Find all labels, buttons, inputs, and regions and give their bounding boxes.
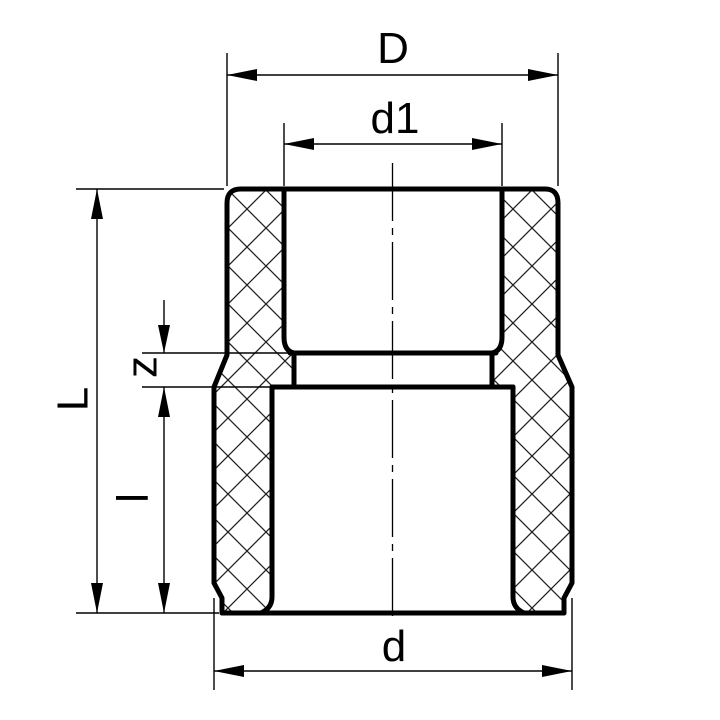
dimension-label-bore-diameter-top: d1 bbox=[371, 94, 420, 143]
drawing-canvas: D d1 L z bbox=[0, 0, 720, 720]
arrowhead-bottom bbox=[91, 583, 103, 613]
dimension-L: L bbox=[48, 189, 224, 613]
dimension-label-lower-height: l bbox=[108, 493, 157, 503]
arrowhead-right bbox=[542, 665, 572, 677]
arrowhead-down bbox=[158, 325, 170, 353]
dimension-label-overall-height: L bbox=[48, 387, 97, 411]
arrowhead-right bbox=[472, 138, 502, 150]
dimension-label-middle-step: z bbox=[117, 356, 166, 378]
dimension-label-outer-diameter-bottom: d bbox=[382, 622, 406, 671]
dimension-label-outer-diameter-top: D bbox=[377, 24, 409, 73]
fitting-section bbox=[214, 163, 572, 621]
arrowhead-left bbox=[214, 665, 244, 677]
arrowhead-left bbox=[284, 138, 314, 150]
technical-section-drawing: D d1 L z bbox=[0, 0, 720, 720]
arrowhead-top bbox=[158, 387, 170, 417]
arrowhead-top bbox=[91, 189, 103, 219]
arrowhead-left bbox=[227, 69, 257, 81]
arrowhead-right bbox=[528, 69, 558, 81]
dimension-l: l bbox=[108, 387, 170, 613]
arrowhead-bottom bbox=[158, 583, 170, 613]
